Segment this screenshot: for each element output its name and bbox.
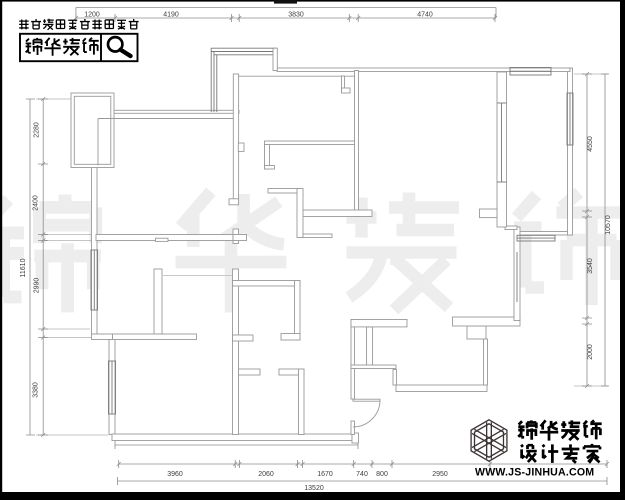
svg-text:3380: 3380 bbox=[33, 382, 40, 398]
svg-text:2990: 2990 bbox=[34, 278, 41, 294]
svg-text:13520: 13520 bbox=[304, 485, 324, 492]
svg-text:4740: 4740 bbox=[417, 11, 433, 18]
svg-text:4190: 4190 bbox=[163, 11, 179, 18]
svg-text:3830: 3830 bbox=[288, 11, 304, 18]
svg-text:1670: 1670 bbox=[317, 471, 333, 478]
svg-text:2060: 2060 bbox=[258, 471, 274, 478]
svg-text:740: 740 bbox=[356, 471, 368, 478]
svg-text:3960: 3960 bbox=[167, 471, 183, 478]
svg-text:3540: 3540 bbox=[587, 258, 594, 274]
svg-text:2950: 2950 bbox=[432, 471, 448, 478]
svg-text:11610: 11610 bbox=[20, 258, 27, 277]
svg-text:2280: 2280 bbox=[34, 122, 41, 138]
svg-text:2000: 2000 bbox=[587, 344, 594, 360]
svg-text:2400: 2400 bbox=[33, 195, 40, 211]
svg-text:10570: 10570 bbox=[605, 215, 612, 235]
svg-text:800: 800 bbox=[376, 471, 388, 478]
svg-text:4550: 4550 bbox=[587, 136, 594, 152]
svg-text:1200: 1200 bbox=[84, 11, 100, 18]
svg-text:WWW.JS-JINHUA.COM: WWW.JS-JINHUA.COM bbox=[475, 467, 594, 479]
